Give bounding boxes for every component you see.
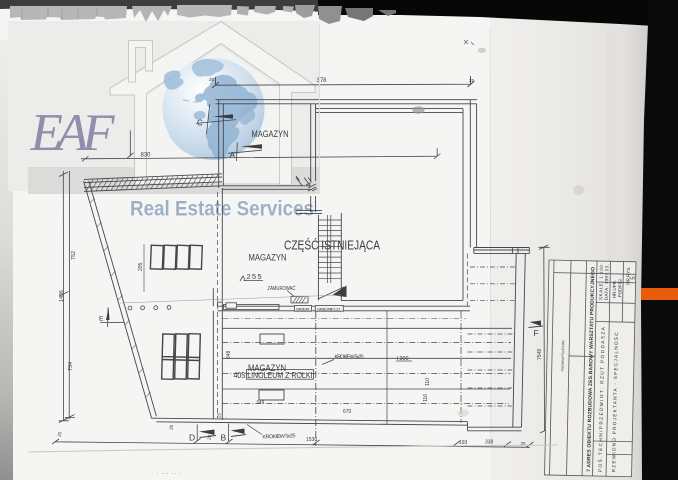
svg-text:MAGAZYN: MAGAZYN (249, 253, 287, 263)
svg-text:DATA: 1997.03.: DATA: 1997.03. (604, 264, 610, 300)
svg-text:7548: 7548 (537, 349, 543, 360)
svg-text:670: 670 (343, 409, 352, 415)
svg-text:193: 193 (459, 440, 468, 446)
svg-text:NR.RYS.: NR.RYS. (626, 266, 631, 284)
svg-text:ZAMUROWAĆ: ZAMUROWAĆ (268, 285, 296, 292)
svg-text:MAGAZYN: MAGAZYN (252, 129, 289, 139)
svg-text:116: 116 (423, 394, 429, 402)
svg-text:. ... .. .: . ... .. . (157, 470, 181, 476)
svg-text:B: B (221, 433, 227, 443)
svg-text:E: E (99, 316, 104, 323)
svg-text:PRACOWNIA PROJEKTOWA: PRACOWNIA PROJEKTOWA (561, 340, 566, 372)
svg-text:205: 205 (138, 262, 144, 271)
svg-text:CZĘŚĆ ISTNIEJĄCA: CZĘŚĆ ISTNIEJĄCA (284, 238, 381, 253)
svg-text:734: 734 (68, 362, 74, 371)
svg-text:752: 752 (71, 251, 77, 260)
svg-text:338: 338 (485, 440, 494, 446)
svg-text:D: D (189, 433, 195, 443)
svg-text:KROKIEW 5x25: KROKIEW 5x25 (262, 433, 295, 440)
svg-text:25: 25 (209, 77, 215, 82)
svg-text:.PODPIS!: .PODPIS! (617, 279, 622, 299)
svg-text:F: F (534, 328, 539, 338)
svg-text:GRZEJN.: GRZEJN. (296, 306, 310, 311)
svg-text:GRZEJNIK C.O.: GRZEJNIK C.O. (317, 306, 341, 311)
svg-text:1530: 1530 (306, 437, 317, 443)
svg-text:648: 648 (226, 350, 232, 359)
svg-text:25: 25 (469, 78, 475, 83)
svg-text:A: A (230, 150, 236, 160)
svg-text:255: 255 (247, 272, 262, 281)
svg-text:378: 378 (317, 78, 328, 84)
svg-text:830: 830 (141, 153, 152, 159)
svg-text:EAF: EAF (30, 104, 116, 162)
svg-text:C: C (197, 119, 203, 128)
svg-text:I 300: I 300 (397, 356, 409, 362)
svg-text:548: 548 (257, 400, 265, 405)
svg-text:405 LINOLEUM Z ROLKI: 405 LINOLEUM Z ROLKI (234, 371, 313, 380)
svg-text:KROKIEW 5x20: KROKIEW 5x20 (335, 355, 364, 361)
svg-text:110: 110 (425, 378, 431, 386)
svg-text:1436: 1436 (59, 290, 65, 302)
svg-text:25: 25 (217, 412, 222, 418)
